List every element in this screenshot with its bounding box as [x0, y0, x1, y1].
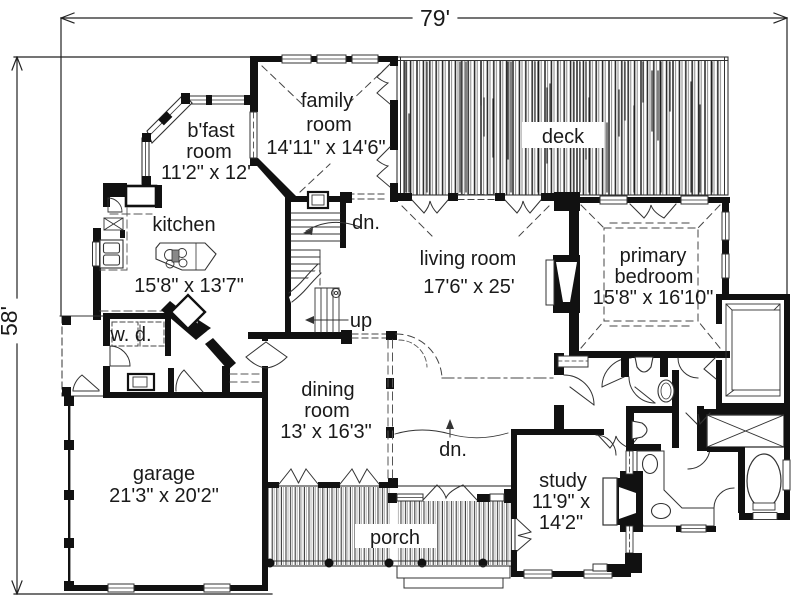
svg-text:15'8" x 16'10": 15'8" x 16'10"	[593, 287, 714, 309]
svg-text:bedroom: bedroom	[615, 266, 694, 288]
svg-text:porch: porch	[370, 527, 420, 549]
svg-text:room: room	[306, 114, 352, 136]
svg-text:21'3" x 20'2": 21'3" x 20'2"	[109, 485, 219, 507]
svg-text:study: study	[539, 470, 587, 492]
svg-text:dn.: dn.	[352, 212, 380, 234]
svg-text:kitchen: kitchen	[152, 214, 215, 236]
svg-text:dining: dining	[301, 379, 354, 401]
svg-text:garage: garage	[133, 463, 195, 485]
svg-text:11'9" x: 11'9" x	[532, 491, 590, 513]
svg-text:room: room	[186, 141, 232, 163]
svg-text:family: family	[301, 90, 353, 112]
svg-text:14'2": 14'2"	[539, 512, 583, 534]
svg-text:w. d.: w. d.	[109, 324, 151, 346]
svg-text:11'2" x 12': 11'2" x 12'	[161, 162, 251, 184]
svg-text:primary: primary	[620, 245, 687, 267]
svg-text:room: room	[304, 400, 350, 422]
svg-text:up: up	[350, 310, 372, 332]
svg-text:deck: deck	[542, 126, 585, 148]
svg-text:79': 79'	[420, 5, 450, 31]
svg-text:13' x 16'3": 13' x 16'3"	[280, 421, 371, 443]
svg-text:living room: living room	[420, 248, 517, 270]
svg-text:15'8" x 13'7": 15'8" x 13'7"	[134, 275, 244, 297]
svg-text:b'fast: b'fast	[187, 120, 235, 142]
svg-text:dn.: dn.	[439, 439, 467, 461]
svg-text:58': 58'	[0, 306, 22, 336]
svg-text:14'11" x 14'6": 14'11" x 14'6"	[266, 137, 385, 159]
svg-text:17'6" x 25': 17'6" x 25'	[423, 276, 514, 298]
